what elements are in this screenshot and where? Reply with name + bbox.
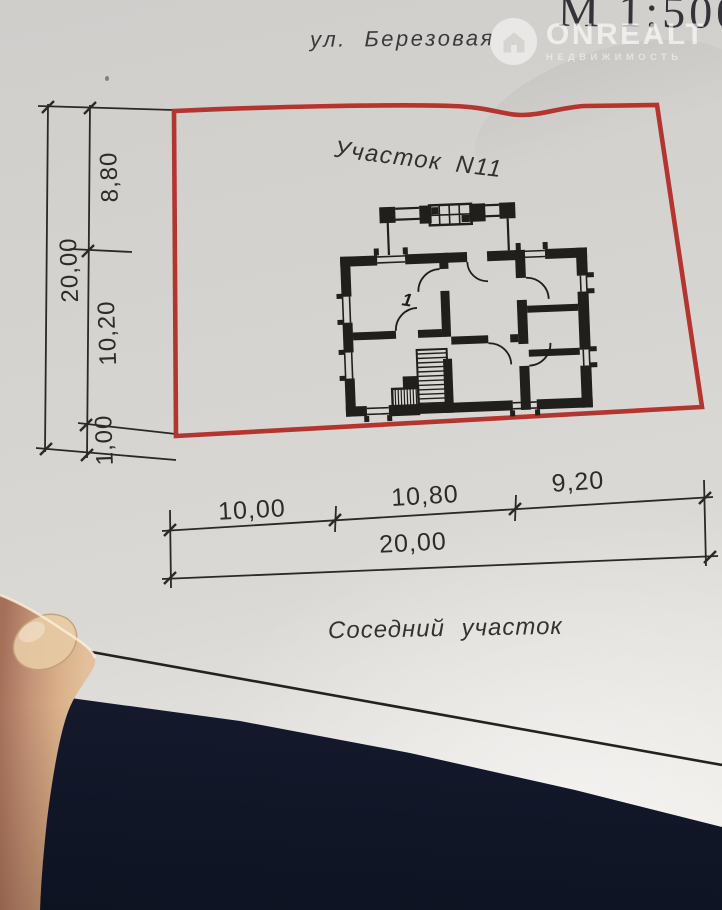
- thumb-holding-paper: [0, 580, 130, 910]
- house-icon: [501, 29, 527, 55]
- onrealt-watermark: ONREALT НЕДВИЖИМОСТЬ: [490, 18, 706, 65]
- left-dim-total-20-00: 20,00: [54, 225, 85, 316]
- watermark-text: ONREALT НЕДВИЖИМОСТЬ: [546, 20, 706, 63]
- floorplan-walls: [333, 199, 599, 423]
- bottom-dim-10-00: 10,00: [201, 493, 302, 527]
- watermark-subtitle: НЕДВИЖИМОСТЬ: [546, 52, 706, 63]
- floorplan-porch: [387, 202, 509, 255]
- bottom-dim-10-80: 10,80: [374, 479, 476, 514]
- watermark-circle: [490, 18, 537, 65]
- left-dim-8-80: 8,80: [94, 132, 125, 223]
- watermark-brand: ONREALT: [546, 20, 706, 50]
- house-floorplan: [333, 199, 599, 423]
- bottom-dim-total-20-00: 20,00: [362, 526, 463, 560]
- photo-of-site-plan: М 1:500 ул. Березовая Участок N11 1 8,80…: [0, 0, 722, 910]
- neighbor-plot-label: Соседний участок: [328, 613, 563, 646]
- left-dim-10-20: 10,20: [92, 288, 123, 379]
- left-dim-1-00: 1,00: [89, 395, 120, 486]
- street-label: ул. Березовая: [310, 25, 495, 53]
